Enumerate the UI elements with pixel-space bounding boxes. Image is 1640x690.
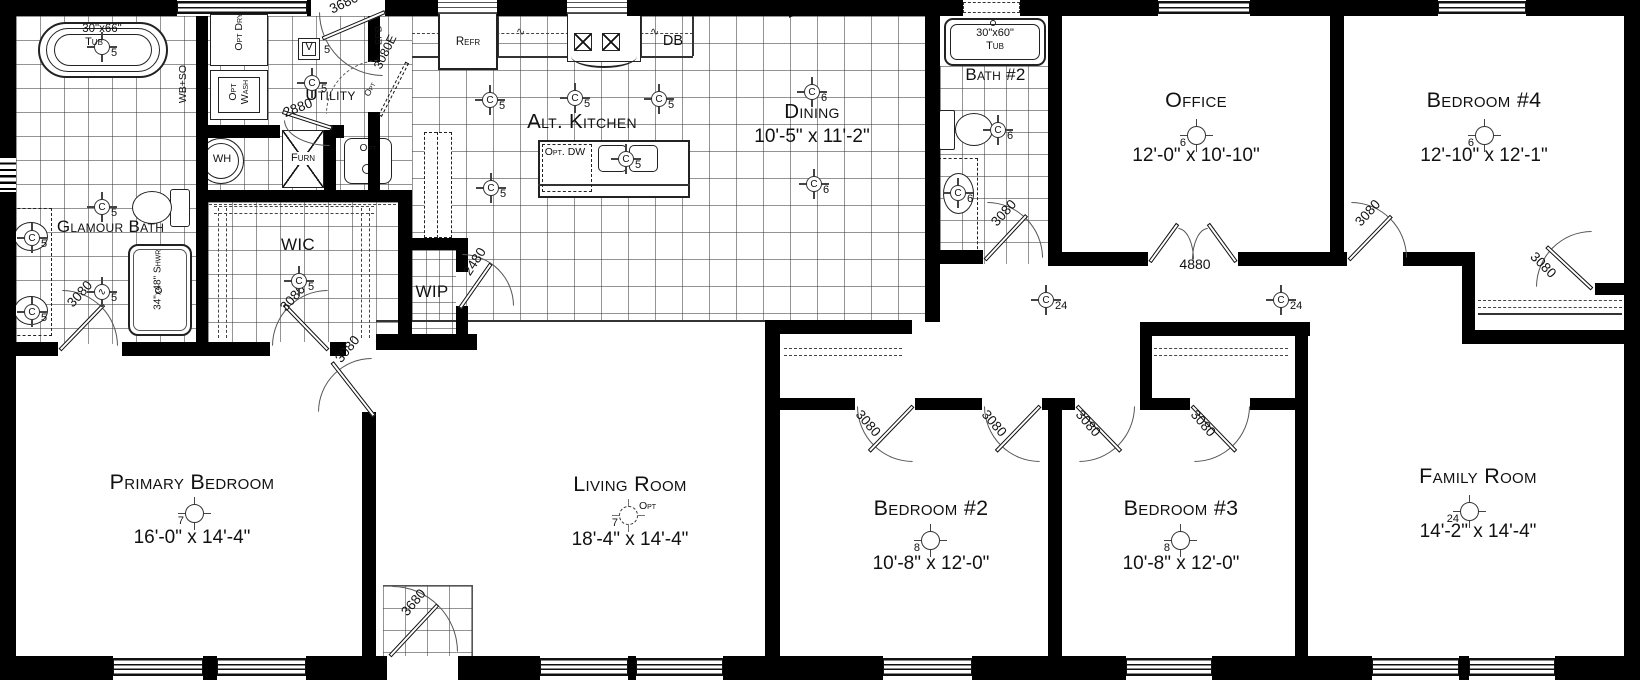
- door-swing-arc: [1194, 406, 1250, 462]
- wall: [1212, 656, 1372, 680]
- wall: [915, 398, 982, 410]
- fixture-circle: [94, 39, 110, 55]
- fixture-circle: C: [1273, 292, 1289, 308]
- ceiling-fixture-symbol: C 6: [950, 185, 966, 201]
- fixture-circle: C: [804, 84, 820, 100]
- wall: [765, 320, 780, 656]
- door-leaf: [1148, 223, 1179, 263]
- ceiling-fixture-symbol: C 5: [567, 90, 583, 106]
- room-name: Office: [1165, 90, 1227, 112]
- toilet-tank: [170, 189, 190, 227]
- bathtub2-inner: [950, 24, 1040, 60]
- fixture-circle: [1171, 531, 1190, 550]
- ceiling-fixture-symbol: C 5: [651, 91, 667, 107]
- fixture-number: 5: [41, 239, 47, 250]
- ceiling-fixture-symbol: C 5: [482, 92, 498, 108]
- ceiling-fixture-symbol: C 24: [1273, 292, 1289, 308]
- fixture-circle: [921, 531, 940, 550]
- wall: [1048, 16, 1062, 266]
- fixture-circle: C: [291, 273, 307, 289]
- door-swing-arc: [984, 406, 1040, 462]
- fixture-number: 5: [308, 282, 314, 293]
- window: [1158, 1, 1250, 14]
- closet-rod: [784, 348, 902, 356]
- wall: [1295, 330, 1308, 656]
- fixture-circle: C: [651, 91, 667, 107]
- door-swing-arc: [1351, 202, 1407, 258]
- wall: [398, 202, 412, 348]
- washer-inner: [218, 77, 260, 113]
- wall: [497, 0, 567, 16]
- fixture-number: 24: [1447, 514, 1459, 525]
- fixture-circle: C: [567, 90, 583, 106]
- wall: [925, 264, 940, 322]
- toilet2-tank: [939, 110, 955, 150]
- ceiling-fixture-symbol: C 6: [806, 176, 822, 192]
- ceiling-fixture-symbol: C 5: [24, 230, 40, 246]
- room-name: Primary Bedroom: [110, 472, 275, 494]
- closet-rod: [1154, 348, 1288, 356]
- cabinet-divider: [692, 16, 694, 56]
- fixture-circle: C: [482, 92, 498, 108]
- ceiling-fixture-symbol: ∿ 5: [94, 284, 110, 300]
- refrigerator: [438, 10, 498, 70]
- ceiling-fixture-symbol: C 6: [804, 84, 820, 100]
- fixture-circle: C: [483, 180, 499, 196]
- fixture-number: 24: [1055, 301, 1067, 312]
- closet-rod: [214, 206, 374, 214]
- ceiling-fixture-symbol: 6: [1187, 126, 1206, 145]
- wall: [1140, 322, 1310, 336]
- wall: [16, 342, 58, 356]
- fixture-circle: C: [94, 199, 110, 215]
- closet-shelf: [218, 208, 227, 338]
- door-leaf: [1207, 223, 1238, 263]
- wall: [330, 342, 346, 356]
- fixture-number: 6: [967, 194, 973, 205]
- fixture-number: 6: [1180, 138, 1186, 149]
- shower-drain: [155, 287, 162, 294]
- wall: [925, 16, 940, 264]
- ceiling-fixture-symbol: C 5: [291, 273, 307, 289]
- wall: [456, 306, 468, 336]
- fixture-number: 24: [1290, 301, 1302, 312]
- closet-shelf-line: [1478, 313, 1622, 315]
- wall: [398, 238, 468, 250]
- dryer: [210, 14, 268, 66]
- burner: [574, 33, 592, 51]
- fixture-circle: [1187, 126, 1206, 145]
- ceiling-fixture-symbol: 8: [921, 531, 940, 550]
- window: [636, 658, 723, 676]
- closet-rod: [1478, 300, 1622, 308]
- wall: [196, 190, 412, 202]
- wall: [376, 334, 477, 350]
- wall: [1462, 330, 1624, 344]
- ceiling-fixture-symbol: 7: [185, 504, 204, 523]
- pantry-cabinet-line: [437, 132, 439, 238]
- door-swing-arc: [857, 406, 913, 462]
- fixture-number: 6: [1007, 131, 1013, 142]
- window: [113, 658, 203, 676]
- wall: [122, 342, 270, 356]
- wall: [306, 656, 387, 680]
- dishwasher: [542, 144, 592, 192]
- ceiling-fixture-symbol: 5: [94, 39, 110, 55]
- ceiling-fixture-symbol: 7 Opt: [619, 506, 638, 525]
- fixture-circle: C: [1038, 292, 1054, 308]
- fixture-circle: C: [24, 230, 40, 246]
- fixture-number: 5: [111, 48, 117, 59]
- ceiling-fixture-symbol: C 24: [1038, 292, 1054, 308]
- wall: [362, 412, 376, 656]
- fixture-number: 5: [111, 208, 117, 219]
- room-dimensions: 18'-4" x 14'-4": [572, 530, 689, 549]
- room-name: Bedroom #3: [1124, 498, 1239, 520]
- counter-break-mark: ∿: [650, 25, 659, 38]
- fixture-circle: C: [24, 304, 40, 320]
- room-dimensions: 16'-0" x 14'-4": [134, 528, 251, 547]
- wall: [1555, 656, 1640, 680]
- ceiling-fixture-symbol: 8: [1171, 531, 1190, 550]
- wall: [203, 656, 217, 680]
- wall: [458, 656, 540, 680]
- wall: [0, 0, 177, 16]
- wall: [1459, 656, 1469, 680]
- fixture-number: 5: [584, 99, 590, 110]
- ceiling-fixture-symbol: C 5: [483, 180, 499, 196]
- window: [177, 1, 307, 14]
- door-swing-arc: [1079, 406, 1135, 462]
- toilet-bowl: [132, 191, 172, 224]
- fixture-number: 7: [612, 518, 618, 529]
- wall: [307, 0, 311, 16]
- fixture-number: 6: [823, 185, 829, 196]
- fixture-circle: [619, 506, 638, 525]
- room-name: Bedroom #4: [1427, 90, 1542, 112]
- ceiling-fixture-symbol: C 5: [24, 304, 40, 320]
- door-swing-arc: [1536, 231, 1592, 287]
- room-name: Living Room: [573, 474, 686, 496]
- wall: [972, 656, 1126, 680]
- floor-plan: ∿ ∿ Primary Bedroom 16'-0" x 14'-4": [0, 0, 1640, 690]
- window: [1372, 658, 1459, 676]
- wall: [1048, 398, 1062, 656]
- window: [963, 2, 1020, 13]
- wall: [1462, 252, 1475, 334]
- ceiling-fixture-symbol: C 5: [618, 151, 634, 167]
- window: [1126, 658, 1212, 676]
- ceiling-fixture-symbol: C 6: [990, 122, 1006, 138]
- fixture-number: 8: [914, 543, 920, 554]
- fixture-number: 6: [821, 93, 827, 104]
- fixture-number: 6: [1468, 138, 1474, 149]
- wall: [1140, 336, 1152, 400]
- fixture-number: 5: [499, 101, 505, 112]
- wall: [196, 16, 208, 344]
- wall: [196, 125, 280, 138]
- vent-box-inner: [302, 42, 316, 56]
- wall: [1403, 252, 1462, 266]
- wall: [1595, 283, 1624, 295]
- window: [217, 658, 306, 676]
- floor-transition-line: [376, 320, 766, 322]
- room-name: Bedroom #2: [874, 498, 989, 520]
- wall: [0, 656, 113, 680]
- burner: [602, 33, 620, 51]
- fixture-circle: C: [806, 176, 822, 192]
- window: [0, 156, 16, 192]
- wall: [1250, 0, 1438, 16]
- wall: [723, 656, 883, 680]
- fixture-circle: [1460, 502, 1479, 521]
- window: [540, 658, 628, 676]
- ceiling-fixture-symbol: C 5: [94, 199, 110, 215]
- wall: [765, 320, 912, 334]
- fixture-circle: C: [304, 75, 320, 91]
- fixture-number: 5: [668, 100, 674, 111]
- fixture-number: 5: [500, 189, 506, 200]
- closet-shelf: [361, 208, 370, 338]
- fixture-circle: C: [618, 151, 634, 167]
- wall: [368, 112, 380, 196]
- door-swing-arc: [318, 358, 372, 412]
- wall: [1020, 0, 1158, 16]
- wall: [1526, 0, 1640, 16]
- fixture-circle: [185, 504, 204, 523]
- fixture-number: 5: [111, 293, 117, 304]
- ceiling-fixture-symbol: C 5: [304, 75, 320, 91]
- fixture-number: 5: [321, 84, 327, 95]
- wall: [385, 0, 438, 16]
- fixture-circle: ∿: [94, 284, 110, 300]
- window: [1469, 658, 1555, 676]
- fixture-number: 8: [1164, 543, 1170, 554]
- fixture-circle: C: [990, 122, 1006, 138]
- wall: [925, 250, 983, 264]
- wall: [0, 0, 16, 656]
- wall: [628, 656, 636, 680]
- room-name: Family Room: [1419, 466, 1537, 488]
- window: [438, 2, 497, 14]
- bathtub2-drain: [990, 20, 996, 26]
- counter-break-mark: ∿: [516, 25, 525, 38]
- window: [567, 2, 627, 14]
- water-heater-inner: [203, 143, 239, 179]
- window: [883, 658, 972, 676]
- fixture-note: Opt: [639, 501, 656, 512]
- door-swing-arc: [1192, 228, 1208, 260]
- fixture-number: 7: [178, 516, 184, 527]
- wall: [1624, 0, 1640, 656]
- fixture-circle: [1475, 126, 1494, 145]
- wall: [1062, 252, 1148, 266]
- fixture-number: 5: [41, 313, 47, 324]
- wall: [1330, 16, 1344, 256]
- room-dimensions: 14'-2" x 14'-4": [1420, 522, 1537, 541]
- window: [1438, 1, 1526, 14]
- wall: [1140, 398, 1190, 410]
- fixture-circle: C: [950, 185, 966, 201]
- fixture-number: 5: [635, 160, 641, 171]
- wall: [1250, 398, 1295, 410]
- wall: [627, 0, 963, 16]
- ceiling-fixture-symbol: 6: [1475, 126, 1494, 145]
- ceiling-fixture-symbol: 24: [1460, 502, 1479, 521]
